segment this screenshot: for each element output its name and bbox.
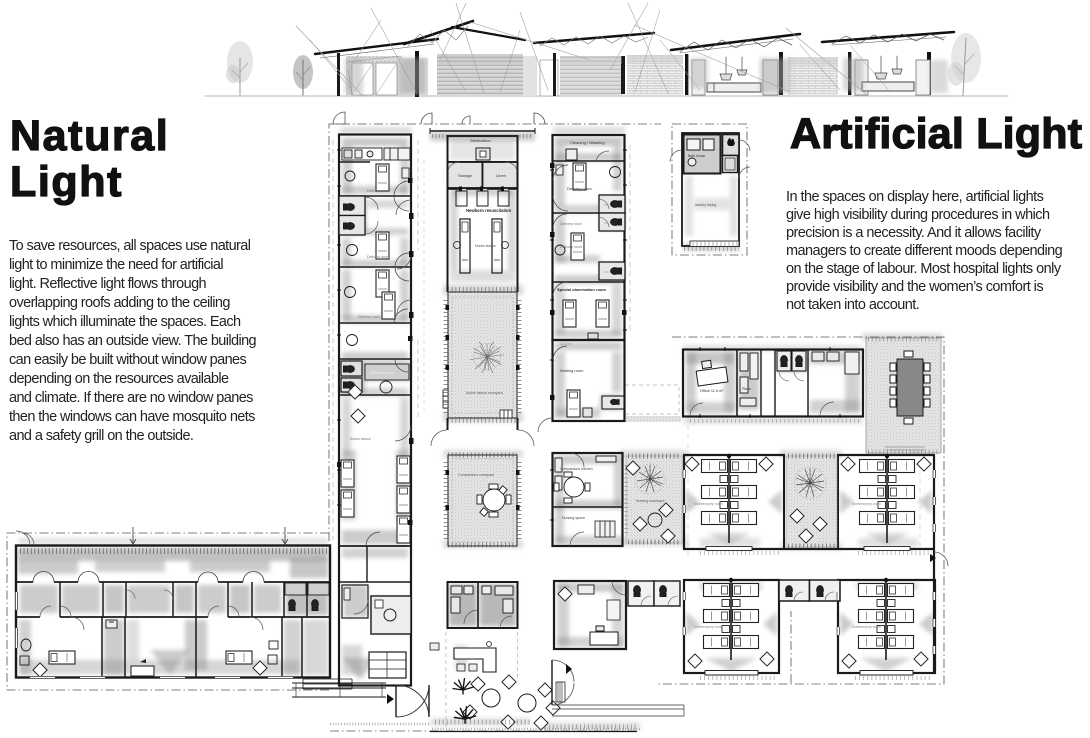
svg-text:Storage: Storage <box>458 173 473 178</box>
svg-text:Mothers/prep room: Mothers/prep room <box>694 625 723 629</box>
svg-text:Mothers/prep room: Mothers/prep room <box>852 502 881 506</box>
svg-text:WC: WC <box>604 270 610 274</box>
svg-text:WC: WC <box>604 203 610 207</box>
svg-text:Nursing courtyard: Nursing courtyard <box>636 499 664 503</box>
svg-text:Delivery room: Delivery room <box>560 222 582 226</box>
svg-text:Companions courtyard: Companions courtyard <box>458 473 494 477</box>
svg-text:Waiting room: Waiting room <box>560 368 584 373</box>
svg-text:Nursing space: Nursing space <box>562 516 585 520</box>
svg-text:Office 11.5 m²: Office 11.5 m² <box>700 389 724 393</box>
svg-text:Sterilization: Sterilization <box>470 138 491 143</box>
svg-text:Active labour: Active labour <box>350 437 372 441</box>
svg-text:Active labour courtyard: Active labour courtyard <box>466 391 503 395</box>
svg-text:Companions kitchen: Companions kitchen <box>560 467 593 471</box>
svg-text:Nurse station: Nurse station <box>475 244 496 248</box>
svg-text:Cleaning / Washing: Cleaning / Washing <box>570 140 605 145</box>
svg-text:laundry drying: laundry drying <box>695 203 716 207</box>
svg-text:Place: Place <box>742 387 751 391</box>
svg-text:Bath house: Bath house <box>688 154 705 158</box>
svg-text:Mothers/prep room: Mothers/prep room <box>694 502 723 506</box>
svg-text:Wellness room: Wellness room <box>370 371 394 375</box>
svg-text:WC: WC <box>604 221 610 225</box>
svg-text:16.5 m²: 16.5 m² <box>560 342 572 346</box>
svg-text:Linen: Linen <box>496 173 506 178</box>
svg-text:Delivery room: Delivery room <box>367 255 389 259</box>
svg-text:Mothers/prep room: Mothers/prep room <box>852 625 881 629</box>
svg-text:Newborn resuscitation: Newborn resuscitation <box>466 208 512 213</box>
svg-text:Delivery room: Delivery room <box>567 186 592 191</box>
svg-text:Delivery room: Delivery room <box>367 189 389 193</box>
svg-text:Delivery room: Delivery room <box>560 245 582 249</box>
svg-text:Delivery room: Delivery room <box>358 315 380 319</box>
svg-text:Special observation room: Special observation room <box>557 287 606 292</box>
